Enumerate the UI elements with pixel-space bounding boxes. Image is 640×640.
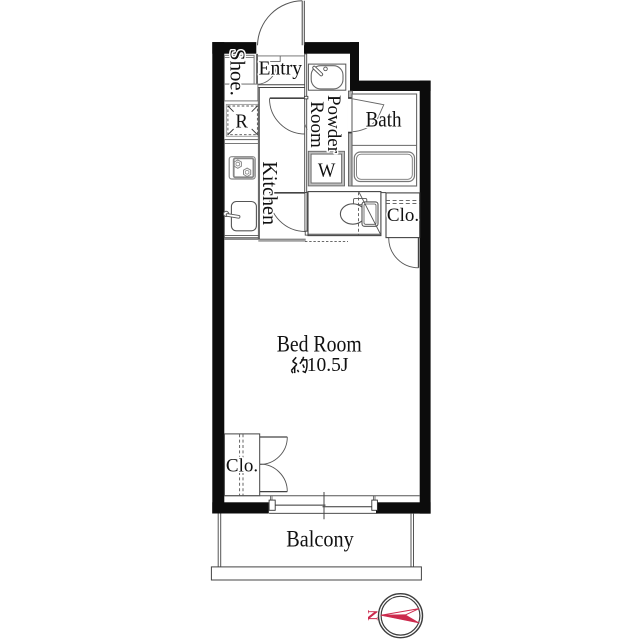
svg-text:Clo.: Clo. (226, 456, 258, 477)
svg-text:Bath: Bath (366, 108, 402, 132)
svg-text:W: W (318, 160, 336, 182)
svg-text:R: R (235, 110, 248, 132)
svg-text:Shoe.: Shoe. (225, 49, 249, 96)
svg-text:Balcony: Balcony (286, 527, 354, 552)
svg-text:Kitchen: Kitchen (258, 161, 282, 225)
svg-text:10.5J: 10.5J (307, 355, 349, 376)
svg-text:N: N (365, 610, 381, 621)
svg-text:Entry: Entry (259, 57, 303, 79)
svg-text:Room: Room (306, 101, 327, 148)
svg-text:Clo.: Clo. (387, 205, 419, 226)
svg-text:Bed Room: Bed Room (277, 332, 362, 357)
